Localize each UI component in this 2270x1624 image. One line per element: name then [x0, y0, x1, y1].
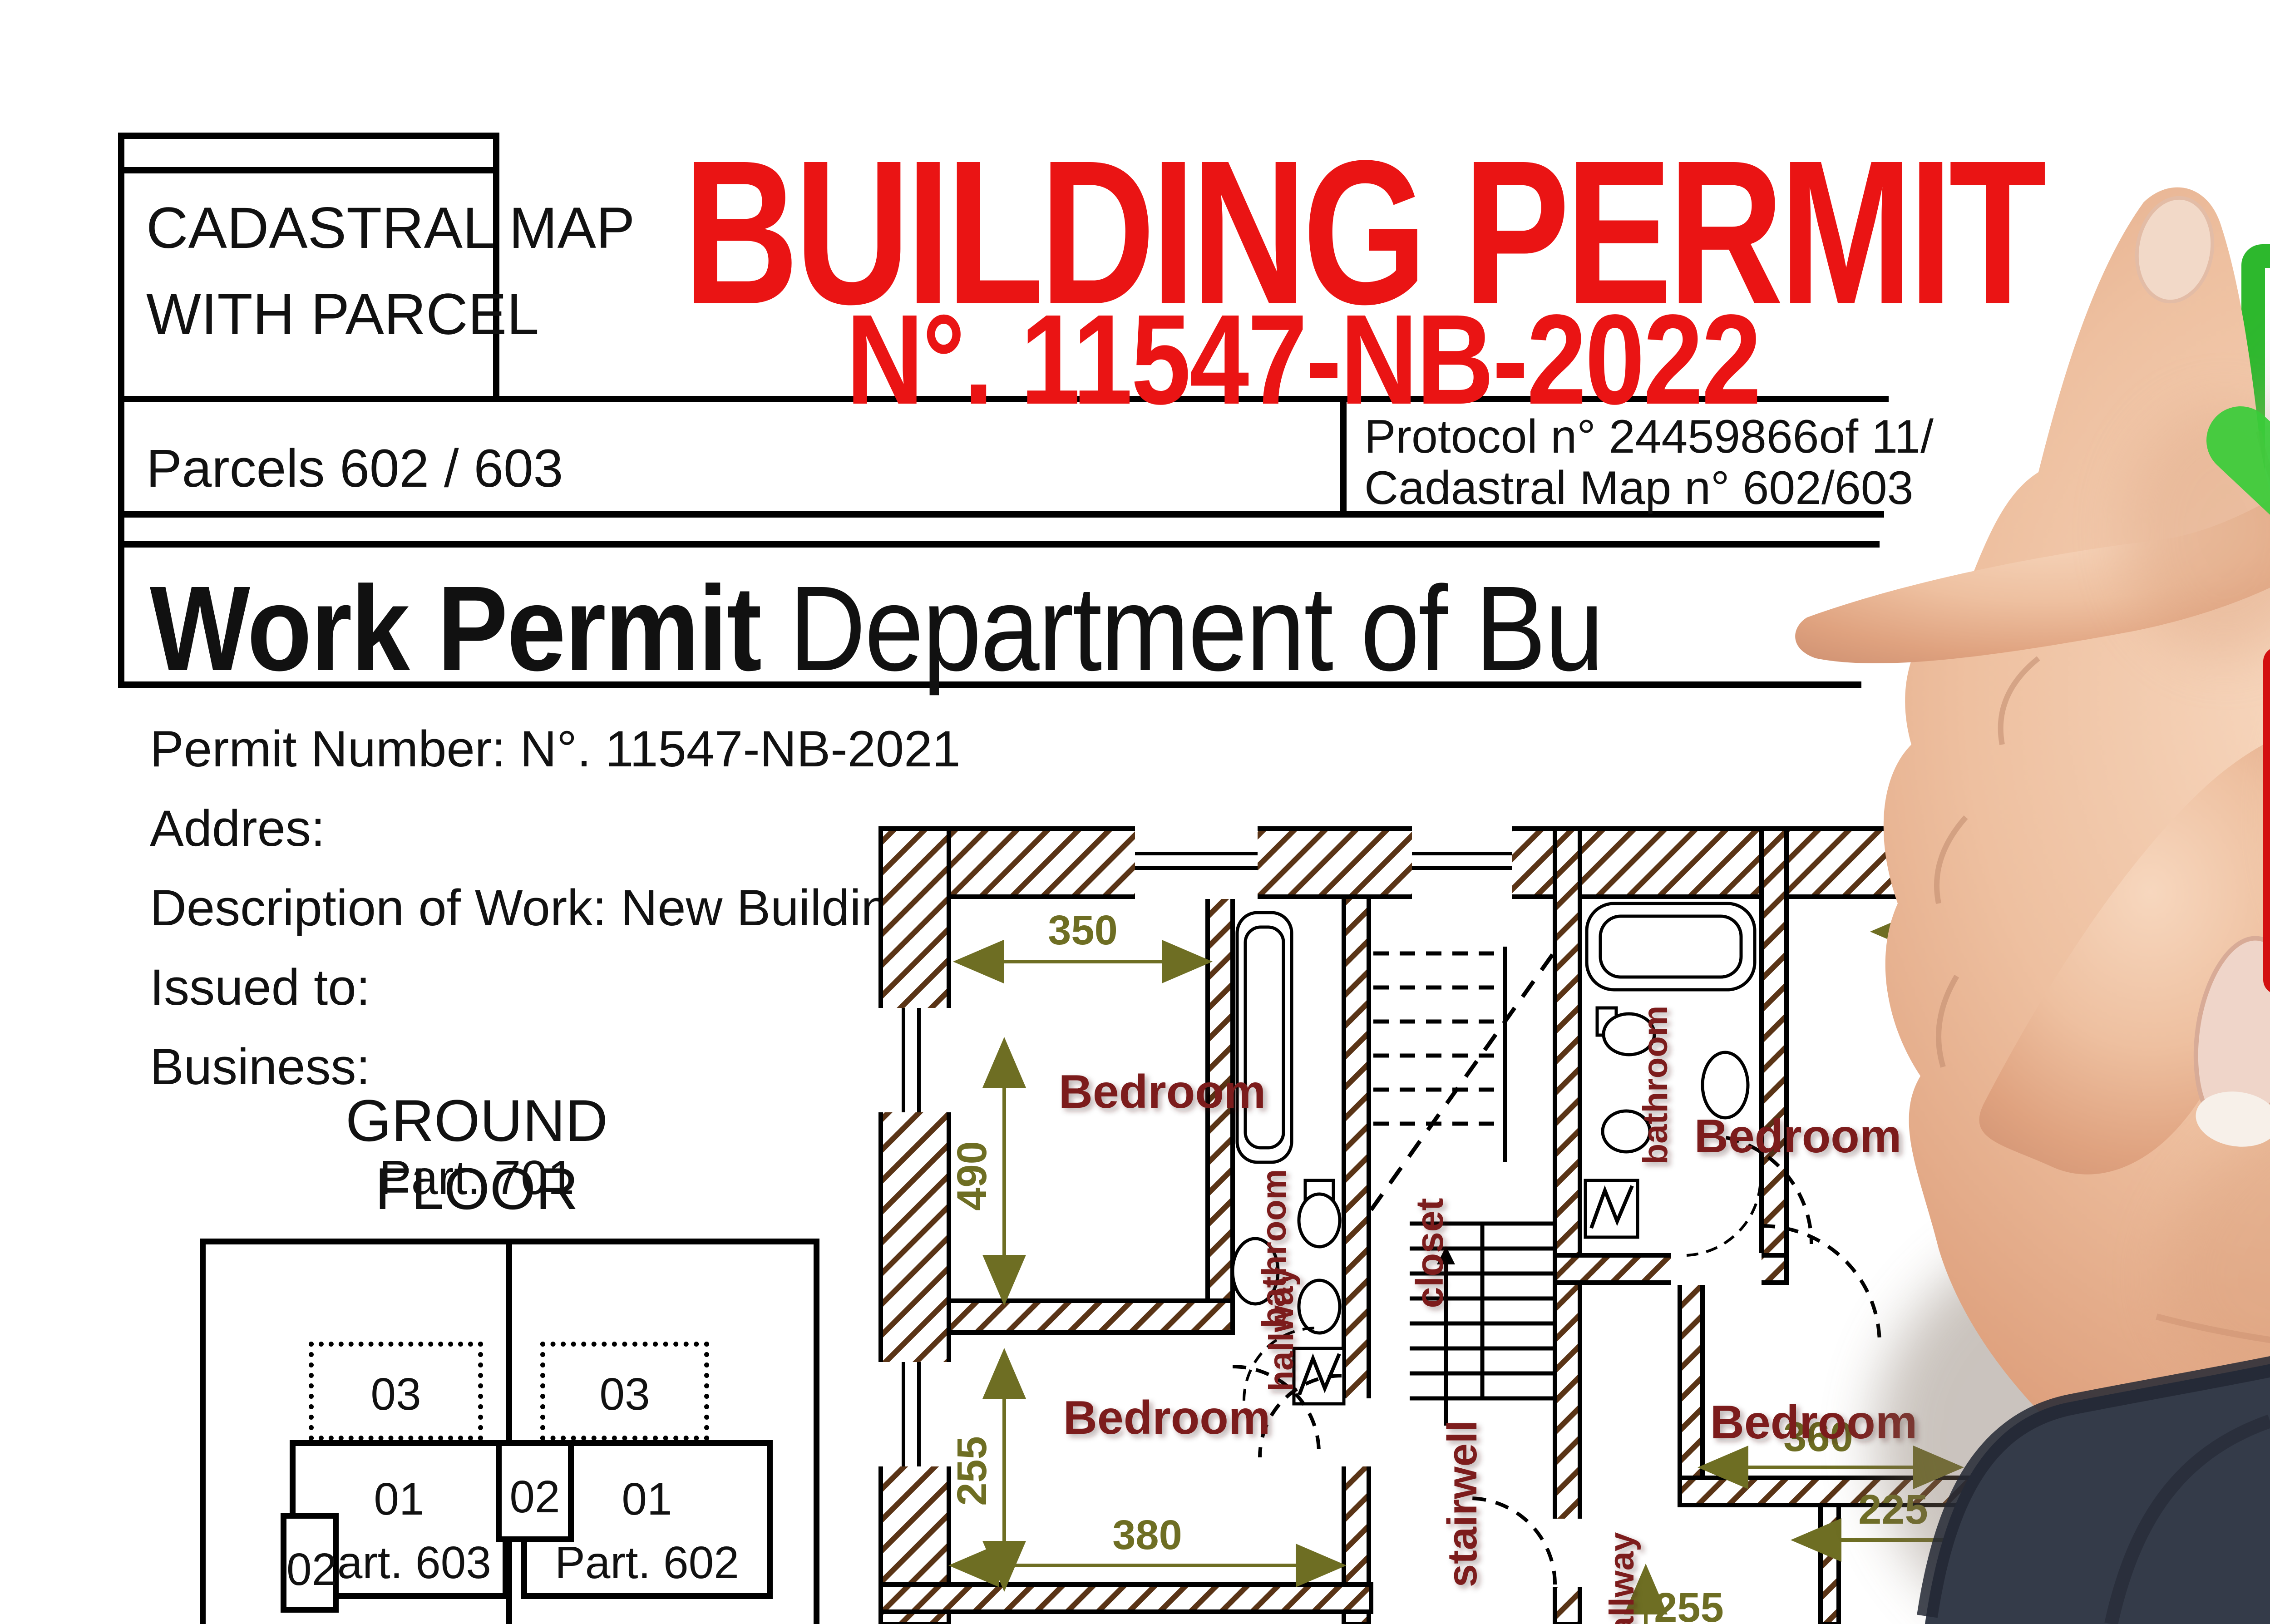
parcel-03-left: 03 — [309, 1342, 483, 1441]
parcel-03-right-label: 03 — [545, 1368, 704, 1421]
parcel-03-right: 03 — [540, 1342, 709, 1441]
parcel-02-mid: 02 — [496, 1440, 574, 1542]
dim-350: 350 — [1048, 907, 1118, 953]
hand-photo — [1748, 159, 2270, 1624]
bidet-icon — [1299, 1280, 1340, 1333]
field-address: Addres: — [150, 789, 961, 868]
dim-380: 380 — [1112, 1512, 1182, 1558]
parcels-label: Parcels 602 / 603 — [146, 438, 563, 499]
dim-255-bottom: 255 — [1654, 1585, 1724, 1624]
field-permit-number: Permit Number: N°. 11547-NB-2021 — [150, 709, 961, 789]
ground-floor-part: Part. 701 — [281, 1150, 672, 1205]
heading-bold: Work Permit — [150, 561, 761, 696]
parcel-02-left: 02 — [281, 1513, 339, 1613]
cadastral-line2: WITH PARCEL — [146, 271, 635, 358]
parcel-602-label: Part. 602 — [527, 1537, 767, 1589]
rejected-checkbox — [2263, 647, 2270, 994]
room-stairwell: stairwell — [1439, 1420, 1485, 1587]
cadastral-line1: CADASTRAL MAP — [146, 185, 635, 271]
table-line — [118, 133, 124, 688]
table-line — [118, 541, 1880, 548]
room-bedroom-tl: Bedroom — [1059, 1066, 1266, 1118]
dim-255: 255 — [949, 1436, 995, 1506]
field-description: Description of Work: New Building — [150, 868, 961, 948]
cadastral-map-box-label: CADASTRAL MAP WITH PARCEL — [146, 185, 635, 358]
parcel-02-left-label: 02 — [286, 1544, 333, 1596]
work-permit-heading: Work Permit Department of Bu — [150, 559, 1603, 698]
building-permit-photo: CADASTRAL MAP WITH PARCEL BUILDING PERMI… — [0, 0, 2270, 1624]
parcel-02-mid-label: 02 — [502, 1471, 568, 1523]
room-hallway-left: hallway — [1262, 1267, 1301, 1392]
dim-490: 490 — [949, 1141, 995, 1211]
table-line — [118, 167, 499, 173]
room-bathroom-right: bathroom — [1636, 1006, 1675, 1165]
parcel-03-left-label: 03 — [314, 1368, 478, 1421]
field-issued-to: Issued to: — [150, 948, 961, 1027]
heading-rest: Department of Bu — [761, 561, 1603, 696]
room-bedroom-bl: Bedroom — [1063, 1392, 1270, 1444]
table-line — [118, 133, 499, 139]
room-closet: closet — [1408, 1198, 1451, 1308]
permit-fields: Permit Number: N°. 11547-NB-2021 Addres:… — [150, 709, 961, 1106]
room-hallway-right: hallway — [1603, 1532, 1641, 1624]
sink-icon — [1702, 1052, 1748, 1118]
